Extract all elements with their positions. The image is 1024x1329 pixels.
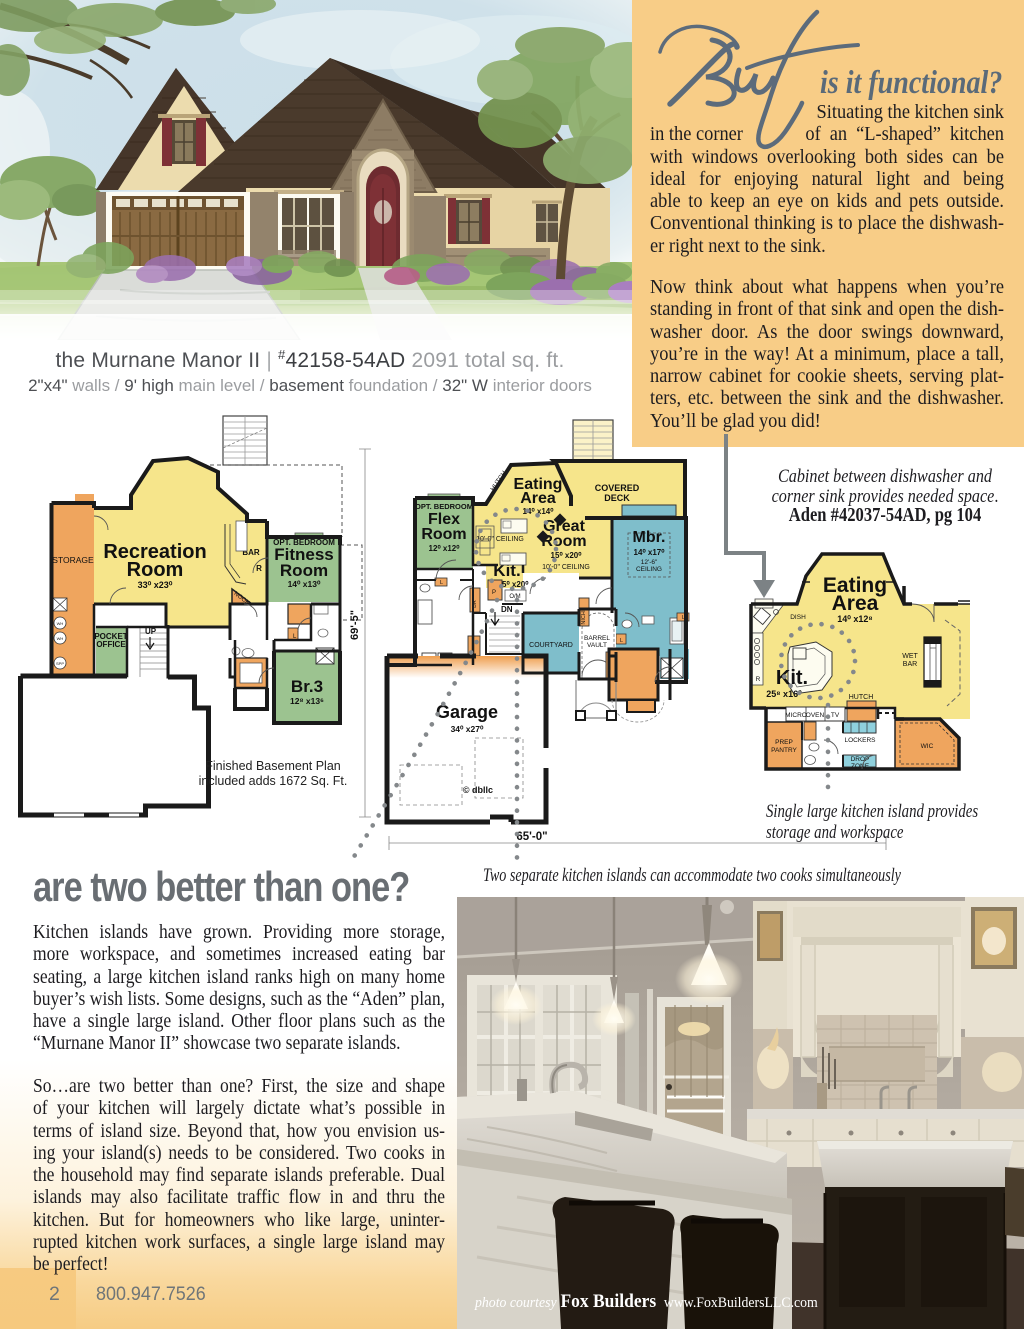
- svg-text:COURTYARD: COURTYARD: [529, 642, 573, 649]
- svg-text:DROP: DROP: [851, 756, 870, 763]
- svg-text:15⁰ x20⁰: 15⁰ x20⁰: [551, 551, 583, 560]
- svg-text:12⁸ x13⁶: 12⁸ x13⁶: [290, 696, 324, 706]
- svg-text:COVERED: COVERED: [595, 483, 640, 493]
- svg-text:65'-0": 65'-0": [516, 831, 547, 843]
- svg-text:CEILING: CEILING: [636, 566, 662, 573]
- svg-text:DECK: DECK: [604, 493, 630, 503]
- svg-text:OPT. BEDROOM: OPT. BEDROOM: [415, 502, 473, 511]
- svg-text:DN: DN: [501, 605, 513, 614]
- svg-text:PREP: PREP: [775, 739, 793, 746]
- svg-text:© dbllc: © dbllc: [463, 785, 493, 795]
- svg-text:BARREL: BARREL: [584, 635, 610, 642]
- svg-text:12'-6": 12'-6": [641, 559, 658, 566]
- svg-text:Mbr.: Mbr.: [633, 529, 666, 546]
- svg-text:L: L: [620, 638, 623, 644]
- svg-text:OVEN: OVEN: [806, 712, 825, 719]
- svg-text:STORAGE: STORAGE: [52, 555, 94, 565]
- svg-text:L: L: [440, 580, 443, 586]
- svg-text:Room: Room: [421, 526, 466, 543]
- svg-text:OFFICE: OFFICE: [96, 640, 126, 649]
- svg-text:UP: UP: [145, 627, 157, 636]
- svg-text:WH: WH: [57, 636, 64, 641]
- svg-text:WIC: WIC: [921, 743, 934, 750]
- svg-text:Kit.: Kit.: [776, 667, 808, 689]
- svg-text:14⁰ x14⁰: 14⁰ x14⁰: [523, 507, 555, 516]
- svg-text:included adds 1672 Sq. Ft.: included adds 1672 Sq. Ft.: [199, 774, 348, 788]
- svg-text:WET: WET: [902, 653, 918, 660]
- svg-text:Room: Room: [280, 561, 328, 580]
- svg-text:14⁰ x12⁸: 14⁰ x12⁸: [837, 614, 872, 624]
- svg-text:VAULT: VAULT: [587, 642, 607, 649]
- svg-text:Room: Room: [127, 559, 184, 581]
- svg-text:Area: Area: [832, 592, 879, 615]
- svg-text:Br.3: Br.3: [291, 677, 323, 696]
- svg-text:14⁰ x17⁰: 14⁰ x17⁰: [634, 548, 666, 557]
- svg-text:25⁸ x16⁰: 25⁸ x16⁰: [766, 689, 802, 699]
- svg-text:10'-0" CEILING: 10'-0" CEILING: [542, 564, 590, 571]
- svg-text:10'-0" CEILING: 10'-0" CEILING: [476, 536, 524, 543]
- svg-text:Finished Basement Plan: Finished Basement Plan: [205, 759, 341, 773]
- svg-text:SPP: SPP: [56, 661, 64, 666]
- svg-text:TV: TV: [831, 712, 840, 719]
- svg-text:R: R: [756, 676, 761, 683]
- svg-text:R: R: [256, 564, 262, 573]
- svg-text:DISH: DISH: [790, 614, 806, 621]
- svg-text:33⁰ x23⁰: 33⁰ x23⁰: [138, 580, 173, 590]
- svg-text:BAR: BAR: [903, 661, 917, 668]
- svg-text:MICRO: MICRO: [785, 712, 807, 719]
- svg-text:Garage: Garage: [436, 702, 498, 722]
- svg-text:Area: Area: [520, 490, 556, 507]
- svg-text:34⁰ x27⁰: 34⁰ x27⁰: [451, 724, 484, 734]
- svg-text:P: P: [492, 590, 496, 596]
- svg-text:WH: WH: [57, 621, 64, 626]
- svg-text:PANTRY: PANTRY: [771, 747, 797, 754]
- svg-text:O/M: O/M: [509, 594, 520, 600]
- svg-text:HUTCH: HUTCH: [849, 694, 874, 701]
- svg-text:12⁰ x12⁰: 12⁰ x12⁰: [429, 544, 461, 553]
- svg-text:14⁰ x13⁰: 14⁰ x13⁰: [288, 579, 321, 589]
- svg-text:69'-5": 69'-5": [349, 610, 361, 640]
- svg-text:LOCKERS: LOCKERS: [844, 737, 876, 744]
